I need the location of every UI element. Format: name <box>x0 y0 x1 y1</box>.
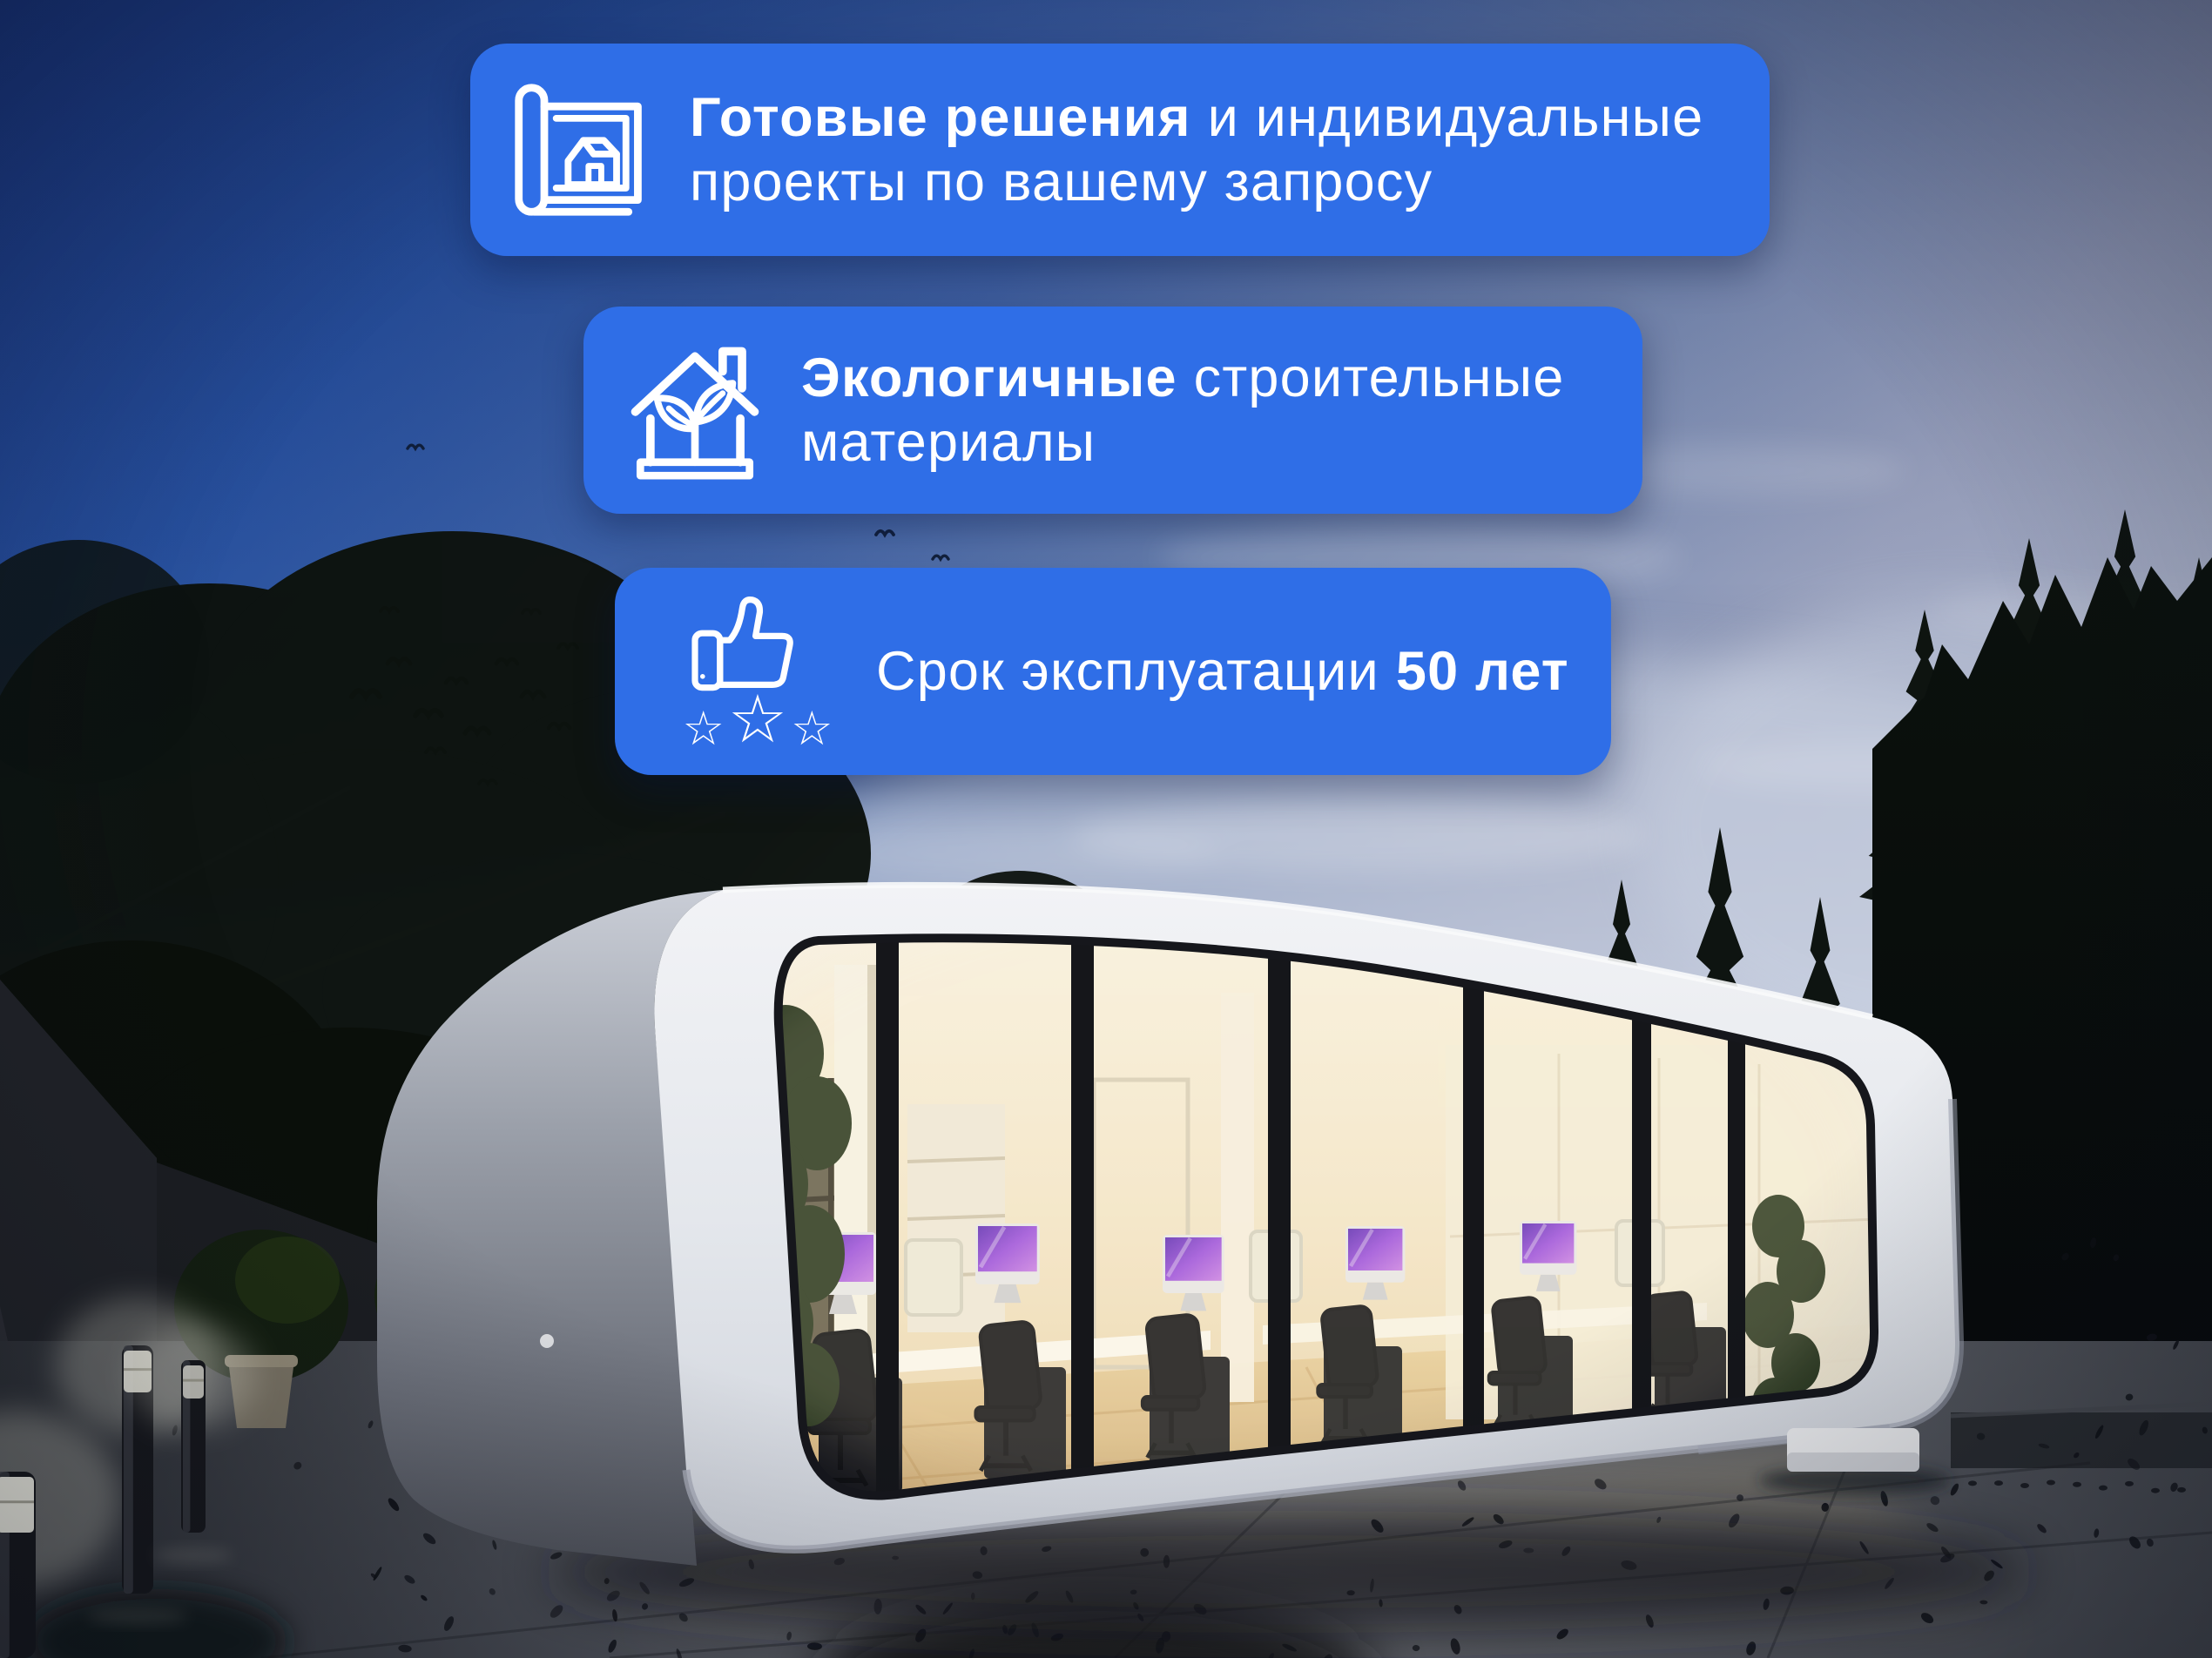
card-text: Экологичныестроительные материалы <box>801 307 1564 514</box>
benefit-card-eco: Экологичныестроительные материалы <box>583 307 1642 514</box>
benefit-card-lifespan: ☆ ☆ ☆ Срок эксплуатации50 лет <box>615 568 1611 775</box>
benefit-card-projects: Готовые решенияи индивидуальные проекты … <box>470 44 1770 256</box>
blueprint-house-icon <box>509 78 653 222</box>
three-stars: ☆ ☆ ☆ <box>683 686 833 752</box>
card-text: Срок эксплуатации50 лет <box>876 568 1569 775</box>
eco-house-icon <box>624 338 766 481</box>
promo-poster: Готовые решенияи индивидуальные проекты … <box>0 0 2212 1658</box>
card-text: Готовые решенияи индивидуальные проекты … <box>690 44 1703 256</box>
thumbs-up-stars-icon: ☆ ☆ ☆ <box>667 587 848 758</box>
